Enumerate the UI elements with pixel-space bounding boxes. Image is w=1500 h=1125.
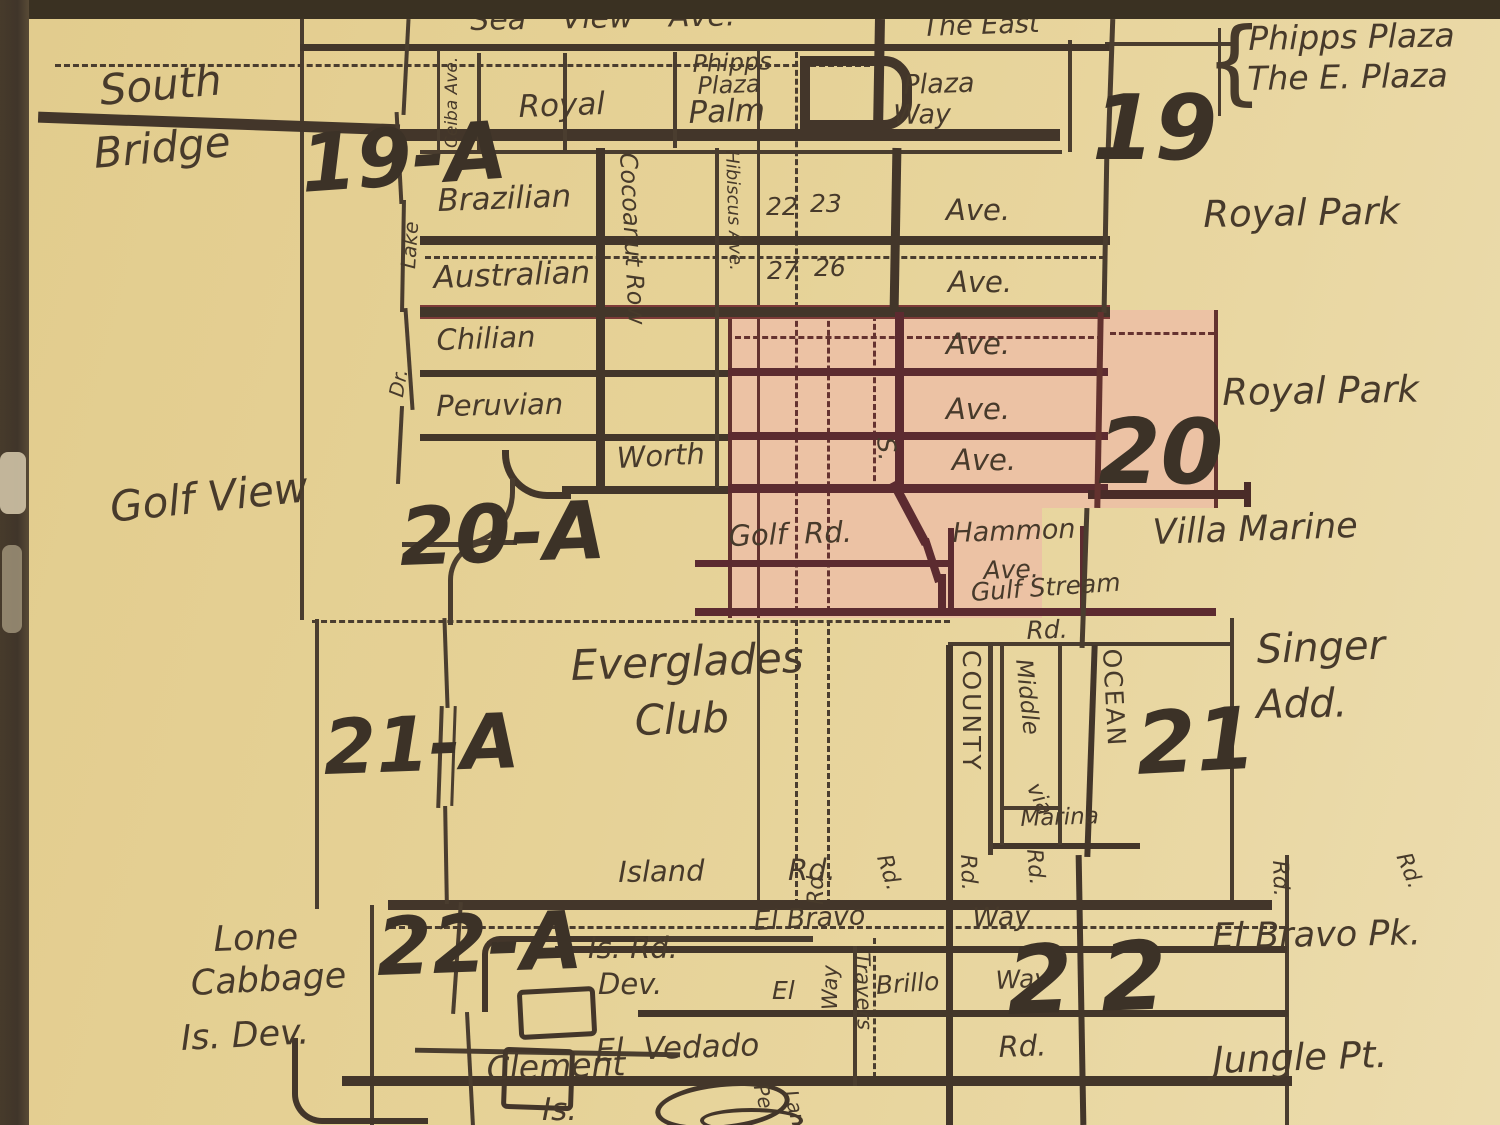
street-label-rd-vertical: Rd.	[1268, 860, 1291, 897]
street-label-ocean: OCEAN	[1099, 648, 1129, 748]
road-hibiscus-ave	[715, 148, 719, 488]
dashed-line	[827, 312, 830, 612]
area-label-everglades: Everglades	[570, 637, 804, 687]
street-label-middle: Middle	[1011, 658, 1042, 736]
lake-trail	[396, 406, 404, 484]
road-loop-stem	[800, 108, 810, 133]
area-label-club: Club	[634, 697, 730, 742]
street-label-lake: Lake	[398, 221, 421, 270]
road-county-rd-corridor	[988, 645, 993, 855]
road-cocoanut-row	[596, 148, 605, 492]
dashed-line	[735, 336, 1103, 339]
label-is-rd: Is. Rd.	[588, 934, 678, 963]
plat-number-22: 22	[1005, 928, 1196, 1030]
plat-number-20a: 20-A	[398, 491, 607, 578]
street-label-gulf-stream-rd: Rd.	[1026, 617, 1068, 643]
block-number-22: 22	[766, 194, 798, 219]
area-label-lone: Lone	[213, 920, 299, 958]
map-frame-top	[0, 0, 1500, 19]
street-label-ave: Ave.	[946, 395, 1010, 424]
road-brazilian-ave	[420, 236, 1110, 245]
area-label-singer: Singer	[1256, 626, 1386, 670]
street-label-marina: Marina	[1020, 805, 1099, 831]
highlight-border-left	[728, 310, 732, 618]
area-label-clement: Clement	[486, 1047, 626, 1085]
street-label-brazilian: Brazilian	[437, 181, 572, 217]
road-chilian-ave	[728, 368, 1108, 376]
plat-boundary	[300, 19, 304, 620]
section-line	[757, 312, 760, 618]
road-australian-ave	[420, 305, 1110, 319]
street-label-worth: Worth	[616, 439, 705, 473]
area-label-singer-add: Add.	[1256, 683, 1348, 725]
frame-wear-patch	[2, 545, 22, 633]
dashed-line	[312, 620, 950, 623]
vintage-plat-map: Sea View Ave. The East { Phipps Plaza Th…	[0, 0, 1500, 1125]
block-number-27: 27	[767, 258, 799, 283]
label-bridge: Bridge	[92, 121, 232, 175]
street-label-el-vedado-rd: Rd.	[998, 1031, 1047, 1062]
area-label-is-dev: Is. Dev.	[180, 1015, 310, 1057]
street-label-county-rd: Rd.	[956, 854, 979, 891]
street-label-peruvian: Peruvian	[436, 390, 564, 421]
street-label-lan: Lan	[781, 1088, 810, 1125]
area-label-el-bravo-pk: El Bravo Pk.	[1212, 916, 1421, 955]
street-label-australian: Australian	[433, 258, 591, 294]
area-label-villa-marine: Villa Marine	[1152, 509, 1358, 551]
lake-trail	[442, 618, 449, 708]
area-label-clement-is: Is.	[542, 1095, 577, 1125]
road-el-vedado-rd	[342, 1076, 1292, 1086]
plat-boundary	[315, 619, 319, 909]
area-label-phipps-plaza: Phipps Plaza	[1248, 18, 1455, 55]
lake-trail	[401, 19, 410, 115]
street-label-ave: Ave.	[946, 196, 1010, 225]
dashed-line	[873, 315, 876, 490]
road-gulf-stream-rd	[695, 608, 1216, 616]
plat-number-21: 21	[1134, 696, 1258, 788]
road-county-rd	[890, 148, 902, 312]
label-phipps-plaza: Plaza	[697, 72, 761, 98]
street-label-island: Island	[618, 856, 705, 887]
dashed-line	[795, 312, 798, 612]
label-dev: Dev.	[598, 970, 662, 999]
street-label-travers: Travers	[851, 952, 875, 1030]
block-line	[673, 52, 677, 148]
street-label-chilian: Chilian	[436, 323, 536, 355]
road-chilian-ave	[420, 370, 728, 377]
frame-wear-patch	[0, 452, 26, 514]
plat-boundary	[1068, 40, 1072, 152]
street-label-dr: Dr.	[386, 367, 411, 398]
street-label-marina-rd: Rd.	[1022, 848, 1047, 886]
plat-number-21a: 21-A	[322, 703, 521, 786]
street-label-el-bravo: El Bravo	[753, 902, 866, 935]
street-label-rd-vertical: Rd.	[806, 869, 828, 905]
road-end-cap	[1244, 482, 1251, 507]
street-label-plaza: Plaza	[903, 70, 975, 99]
street-label-brillo: Brillo	[875, 969, 940, 998]
street-label-el: El	[772, 978, 795, 1003]
street-label-county: COUNTY	[959, 650, 984, 773]
block-number-26: 26	[814, 255, 846, 280]
road-marina	[992, 843, 1140, 849]
street-label-hammon: Hammon	[952, 516, 1076, 547]
road-worth-ave	[728, 484, 1108, 493]
area-label-cabbage: Cabbage	[190, 959, 347, 1002]
road-county-rd	[938, 574, 946, 614]
plat-number-22a: 22-A	[375, 901, 584, 988]
street-label-way-vertical: Way	[820, 965, 841, 1010]
lake-trail	[465, 1012, 475, 1125]
area-label-royal-park-upper: Royal Park	[1203, 193, 1400, 233]
road-vedado-loop	[292, 1038, 428, 1124]
road-middle-rd	[1000, 645, 1004, 845]
road-county-rd-corridor	[946, 645, 953, 1125]
plat-number-20: 20	[1098, 408, 1223, 498]
street-label-rd-slanted: Rd.	[872, 852, 904, 893]
street-label-way: Way	[893, 101, 951, 129]
street-label-cocoanut-row: Cocoanut Row	[616, 152, 649, 326]
street-label-hibiscus-ave: Hibiscus Ave.	[722, 150, 744, 271]
street-label-s-county: S.	[873, 436, 900, 462]
lake-trail	[443, 806, 449, 904]
building-block	[517, 986, 598, 1040]
area-label-golf-view: Golf View	[108, 466, 310, 529]
block-number-23: 23	[810, 191, 842, 216]
street-label-golf-rd: Golf Rd.	[728, 518, 852, 551]
street-label-palm: Palm	[688, 95, 766, 129]
street-label-pel: Pel	[751, 1082, 778, 1116]
dashed-line	[1110, 332, 1214, 335]
street-label-rd-slanted: Rd.	[1392, 850, 1426, 892]
street-label-ave: Ave.	[948, 268, 1012, 297]
area-label-royal-park-lower: Royal Park	[1222, 371, 1419, 411]
label-south: South	[98, 59, 223, 111]
road-golf-rd	[695, 560, 950, 567]
street-label-royal: Royal	[518, 89, 605, 123]
area-label-jungle-pt: Jungle Pt.	[1212, 1036, 1388, 1079]
road-peruvian-ave	[728, 432, 1108, 440]
plat-number-19: 19	[1092, 84, 1217, 174]
street-label-ave: Ave.	[952, 446, 1016, 475]
street-label-ceiba-ave: Ceiba Ave.	[444, 57, 461, 148]
area-label-the-e-plaza: The E. Plaza	[1247, 59, 1448, 95]
street-label-ave: Ave.	[946, 330, 1010, 359]
